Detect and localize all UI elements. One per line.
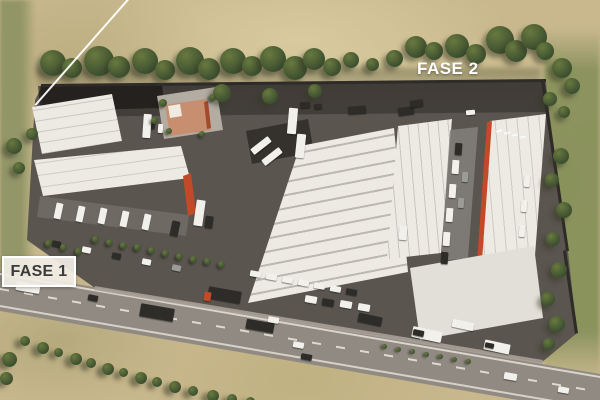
phase2-label: FASE 2 [417,59,479,79]
tree [541,292,555,306]
tree [549,316,565,332]
shrub [207,390,219,400]
plaza-tree [166,128,172,134]
tree [564,78,580,94]
tree [6,138,22,154]
shrub [410,349,415,354]
shrub [45,240,52,247]
plaza-tree [159,99,167,107]
shrub [396,347,401,352]
tree [303,48,325,70]
shrub [119,368,128,377]
shrub [438,354,443,359]
tree [343,52,359,68]
tree [551,262,567,278]
shrub [92,236,99,243]
shrub [176,253,183,260]
shrub [466,359,471,364]
tree [323,58,341,76]
shrub [452,357,457,362]
vegetation-layer [0,0,600,400]
tree [308,84,322,98]
shrub [75,248,82,255]
shrub [134,244,141,251]
tree [425,42,443,60]
tree [536,42,554,60]
shrub [148,247,155,254]
shrub [162,250,169,257]
plaza-tree [151,117,158,124]
shrub [152,377,162,387]
phase1-label: FASE 1 [11,263,68,281]
tree [26,128,38,140]
shrub [102,363,114,375]
shrub [37,342,49,354]
plaza-tree [209,94,216,101]
shrub [120,242,127,249]
tree [155,60,175,80]
shrub [424,352,429,357]
tree [386,50,403,67]
shrub [169,381,181,393]
shrub [204,258,211,265]
shrub [20,336,30,346]
tree [558,106,570,118]
shrub [382,344,387,349]
tree [262,88,278,104]
shrub [86,358,96,368]
tree [556,202,572,218]
tree [405,36,427,58]
tree [108,56,130,78]
shrub [70,353,82,365]
shrub [60,244,67,251]
tree [546,232,560,246]
tree [13,162,25,174]
plaza-tree [199,131,205,137]
shrub [227,394,237,400]
phase1-label-box: FASE 1 [2,256,76,287]
shrub [190,256,197,263]
tree [543,338,555,350]
shrub [135,372,147,384]
tree [552,58,572,78]
shrub [188,386,198,396]
shrub [0,372,13,385]
shrub [54,348,63,357]
tree [543,92,557,106]
tree [545,173,559,187]
tree [366,58,379,71]
tree [198,58,220,80]
tree [553,148,569,164]
aerial-site-render: FASE 2 FASE 1 [0,0,600,400]
shrub [106,239,113,246]
shrub [218,261,225,268]
tree [213,84,231,102]
shrub [2,352,17,367]
tree [242,56,262,76]
